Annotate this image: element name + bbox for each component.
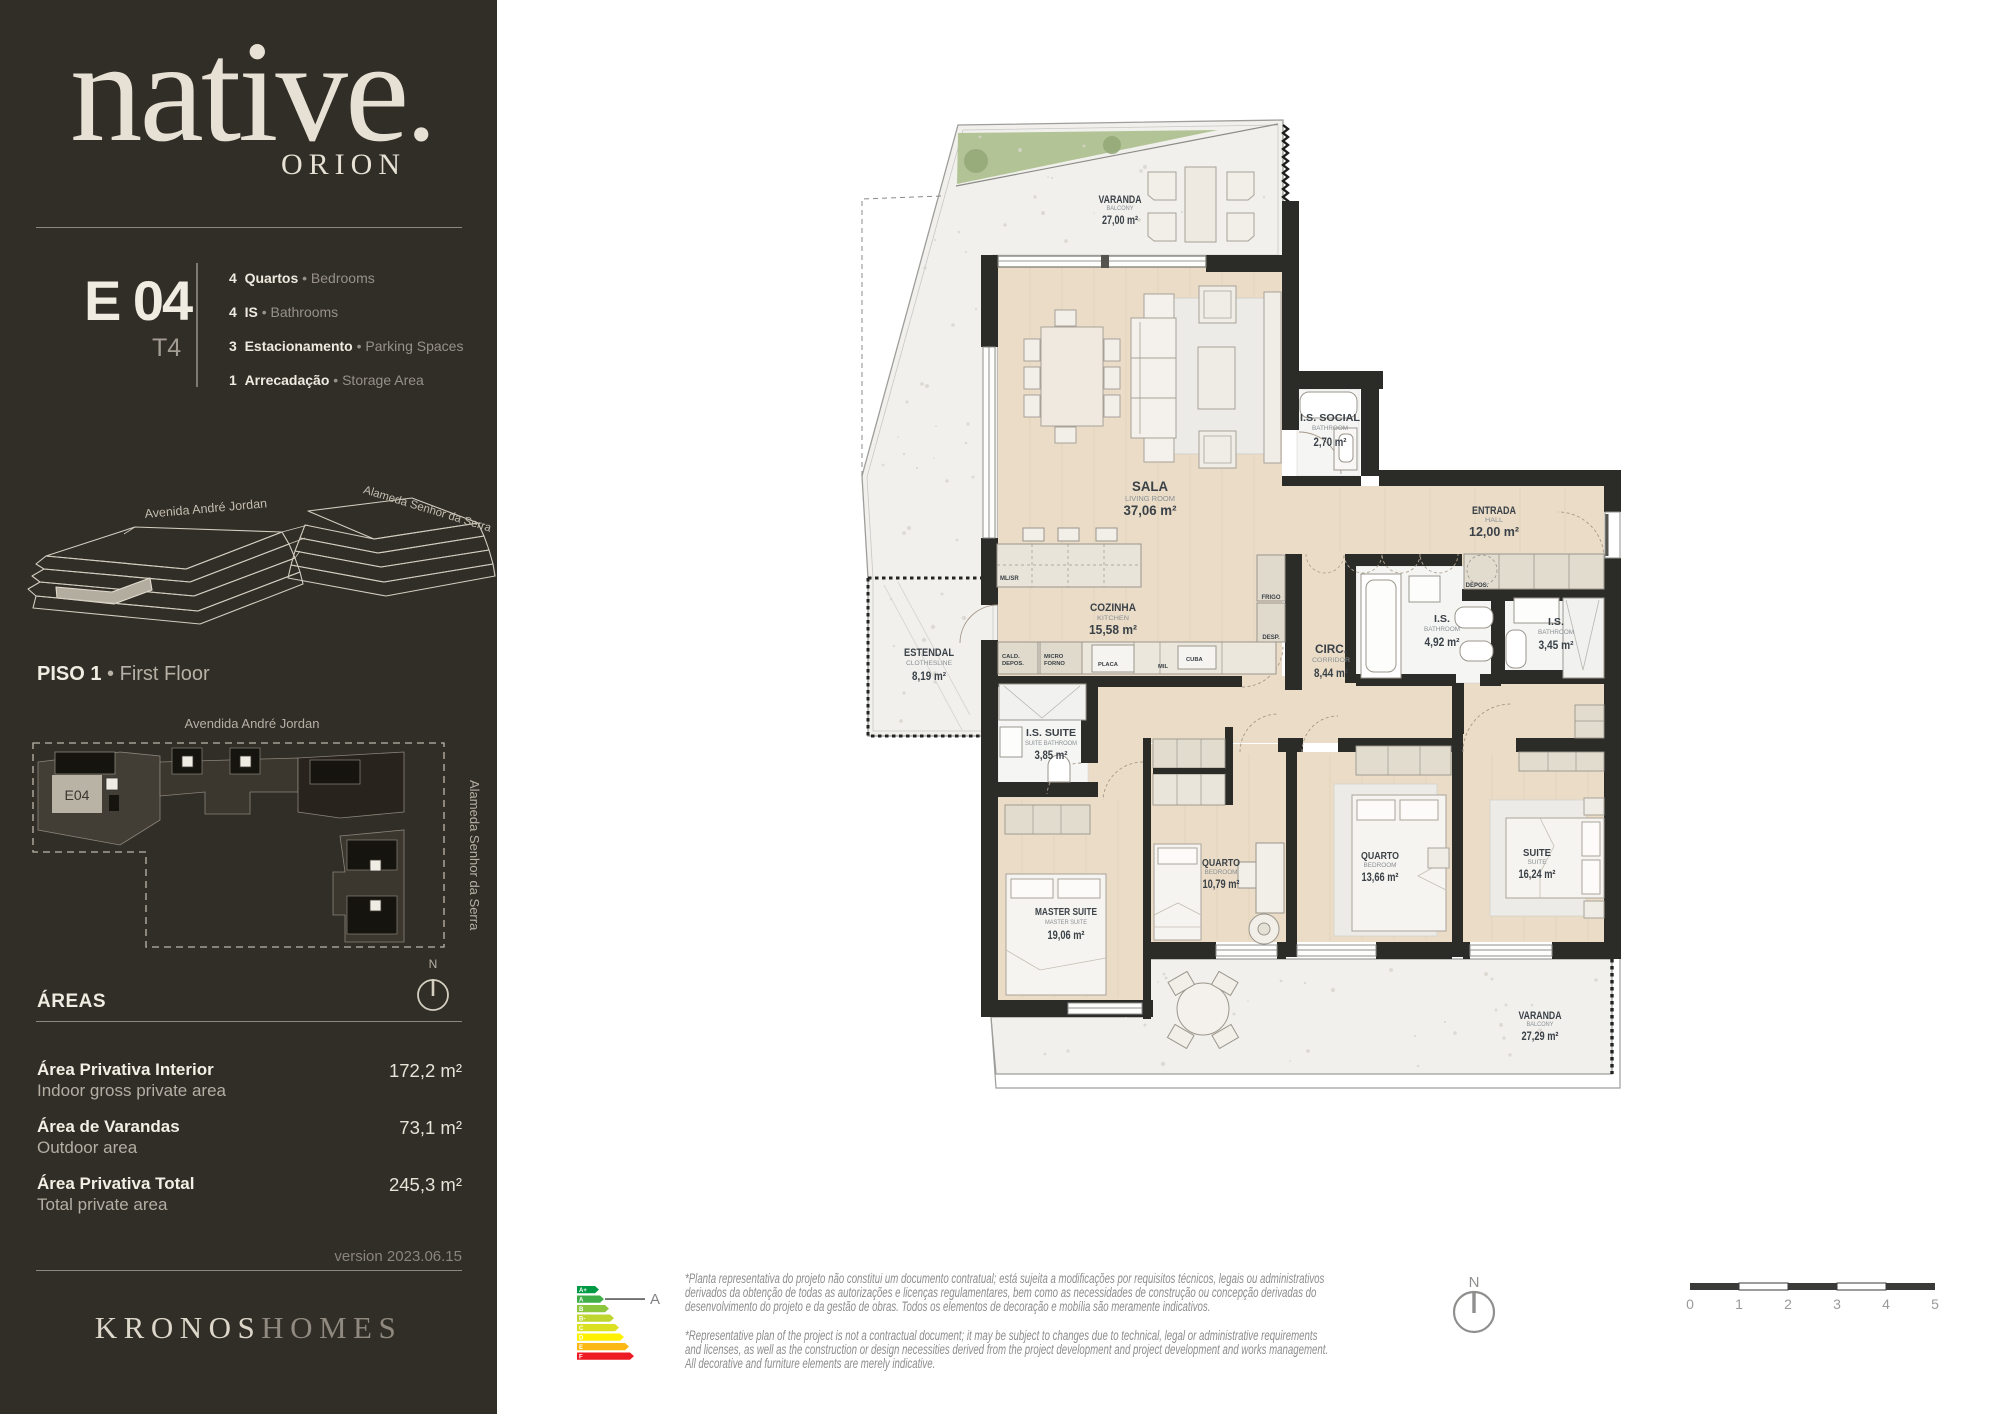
- svg-text:2,70 m²: 2,70 m²: [1314, 437, 1347, 449]
- svg-text:1: 1: [1735, 1296, 1743, 1312]
- svg-text:MASTER SUITE: MASTER SUITE: [1035, 906, 1097, 918]
- svg-text:QUARTO: QUARTO: [1361, 850, 1399, 862]
- svg-text:DESP.: DESP.: [1262, 635, 1280, 641]
- svg-text:3,45 m²: 3,45 m²: [1539, 640, 1574, 652]
- svg-text:SUITE: SUITE: [1528, 860, 1547, 866]
- svg-text:MICRO: MICRO: [1044, 654, 1064, 660]
- svg-text:MASTER SUITE: MASTER SUITE: [1045, 920, 1087, 926]
- svg-text:ENTRADA: ENTRADA: [1472, 505, 1516, 517]
- svg-text:C: C: [579, 1326, 584, 1332]
- svg-text:3: 3: [1833, 1296, 1841, 1312]
- svg-text:Avendida André Jordan: Avendida André Jordan: [185, 716, 320, 731]
- svg-text:HALL: HALL: [1485, 517, 1503, 524]
- svg-text:SALA: SALA: [1132, 479, 1168, 494]
- svg-text:I.S. SOCIAL: I.S. SOCIAL: [1300, 412, 1361, 424]
- svg-text:BATHROOM: BATHROOM: [1538, 629, 1574, 636]
- svg-text:BATHROOM: BATHROOM: [1424, 626, 1460, 633]
- svg-text:A: A: [650, 1291, 660, 1308]
- svg-text:27,00 m²: 27,00 m²: [1102, 213, 1138, 227]
- svg-text:13,66 m²: 13,66 m²: [1362, 870, 1399, 884]
- svg-text:I.S.: I.S.: [1548, 616, 1564, 628]
- svg-text:E: E: [579, 1345, 583, 1351]
- svg-text:15,58 m²: 15,58 m²: [1089, 623, 1137, 637]
- svg-text:BALCONY: BALCONY: [1107, 205, 1135, 212]
- svg-text:I.S. SUITE: I.S. SUITE: [1026, 727, 1076, 739]
- svg-text:PLACA: PLACA: [1098, 662, 1119, 668]
- svg-text:A+: A+: [579, 1288, 587, 1294]
- svg-text:B-: B-: [579, 1316, 585, 1322]
- svg-text:FRIGO: FRIGO: [1262, 595, 1281, 601]
- svg-text:0: 0: [1686, 1296, 1694, 1312]
- svg-text:Alameda Senhor da Serra: Alameda Senhor da Serra: [362, 484, 493, 535]
- svg-text:N: N: [429, 957, 438, 971]
- svg-text:12,00 m²: 12,00 m²: [1469, 525, 1519, 539]
- svg-text:FORNO: FORNO: [1044, 661, 1065, 667]
- svg-text:B: B: [579, 1307, 584, 1313]
- svg-text:D: D: [579, 1335, 584, 1341]
- svg-text:SUITE BATHROOM: SUITE BATHROOM: [1025, 741, 1077, 747]
- svg-text:19,06 m²: 19,06 m²: [1048, 928, 1085, 942]
- svg-text:BALCONY: BALCONY: [1527, 1021, 1555, 1028]
- svg-text:16,24 m²: 16,24 m²: [1519, 867, 1556, 881]
- svg-text:37,06 m²: 37,06 m²: [1124, 503, 1177, 518]
- svg-text:8,19 m²: 8,19 m²: [912, 671, 946, 683]
- svg-text:CORRIDOR: CORRIDOR: [1312, 657, 1350, 664]
- svg-text:BEDROOM: BEDROOM: [1364, 862, 1397, 869]
- svg-text:DEPOS.: DEPOS.: [1466, 583, 1489, 589]
- svg-text:DEPOS.: DEPOS.: [1002, 661, 1024, 667]
- svg-text:KITCHEN: KITCHEN: [1097, 615, 1129, 622]
- svg-text:Avenida André Jordan: Avenida André Jordan: [144, 496, 268, 521]
- svg-text:E04: E04: [65, 787, 90, 803]
- svg-text:3,85 m²: 3,85 m²: [1035, 750, 1068, 762]
- svg-text:BATHROOM: BATHROOM: [1312, 425, 1348, 432]
- svg-text:4,92 m²: 4,92 m²: [1425, 637, 1460, 649]
- svg-text:SUITE: SUITE: [1523, 847, 1551, 859]
- svg-text:MIL: MIL: [1158, 664, 1168, 670]
- svg-text:ESTENDAL: ESTENDAL: [904, 647, 954, 659]
- svg-text:F: F: [579, 1354, 583, 1360]
- svg-text:BEDROOM: BEDROOM: [1205, 869, 1238, 876]
- svg-text:A: A: [579, 1297, 584, 1303]
- svg-text:CALD.: CALD.: [1002, 654, 1020, 660]
- svg-text:ML/SR: ML/SR: [1000, 576, 1019, 582]
- svg-text:N: N: [1469, 1274, 1480, 1291]
- svg-text:CIRC.: CIRC.: [1315, 644, 1347, 656]
- svg-text:27,29 m²: 27,29 m²: [1522, 1029, 1559, 1043]
- svg-text:I.S.: I.S.: [1434, 613, 1450, 625]
- svg-text:2: 2: [1784, 1296, 1792, 1312]
- svg-text:4: 4: [1882, 1296, 1890, 1312]
- svg-text:10,79 m²: 10,79 m²: [1203, 877, 1240, 891]
- svg-text:CUBA: CUBA: [1186, 657, 1204, 663]
- svg-text:5: 5: [1931, 1296, 1939, 1312]
- svg-text:8,44 m²: 8,44 m²: [1314, 668, 1348, 680]
- svg-text:Alameda Senhor da Serra: Alameda Senhor da Serra: [467, 780, 482, 931]
- svg-text:COZINHA: COZINHA: [1090, 602, 1136, 614]
- svg-text:QUARTO: QUARTO: [1202, 857, 1240, 869]
- svg-text:LIVING ROOM: LIVING ROOM: [1125, 496, 1175, 503]
- svg-text:CLOTHESLINE: CLOTHESLINE: [906, 661, 952, 667]
